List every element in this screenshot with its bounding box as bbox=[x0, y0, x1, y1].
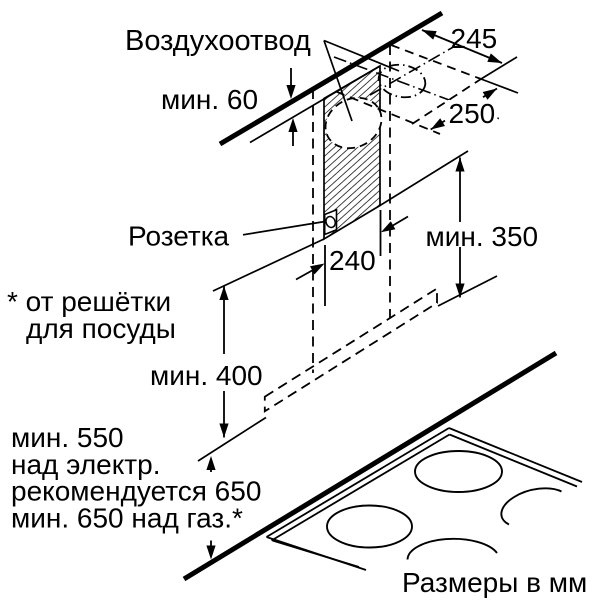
svg-text:245: 245 bbox=[451, 23, 498, 54]
svg-text:250: 250 bbox=[449, 98, 496, 129]
svg-text:мин. 400: мин. 400 bbox=[150, 360, 263, 391]
svg-text:мин. 350: мин. 350 bbox=[426, 221, 539, 252]
svg-text:240: 240 bbox=[329, 245, 376, 276]
svg-text:для посуды: для посуды bbox=[26, 313, 176, 344]
svg-text:мин. 60: мин. 60 bbox=[161, 84, 258, 115]
svg-text:Размеры в мм: Размеры в мм bbox=[402, 567, 587, 598]
svg-text:Розетка: Розетка bbox=[128, 221, 230, 252]
svg-text:мин. 650 над газ.*: мин. 650 над газ.* bbox=[11, 503, 243, 534]
svg-text:Воздухоотвод: Воздухоотвод bbox=[125, 25, 311, 57]
